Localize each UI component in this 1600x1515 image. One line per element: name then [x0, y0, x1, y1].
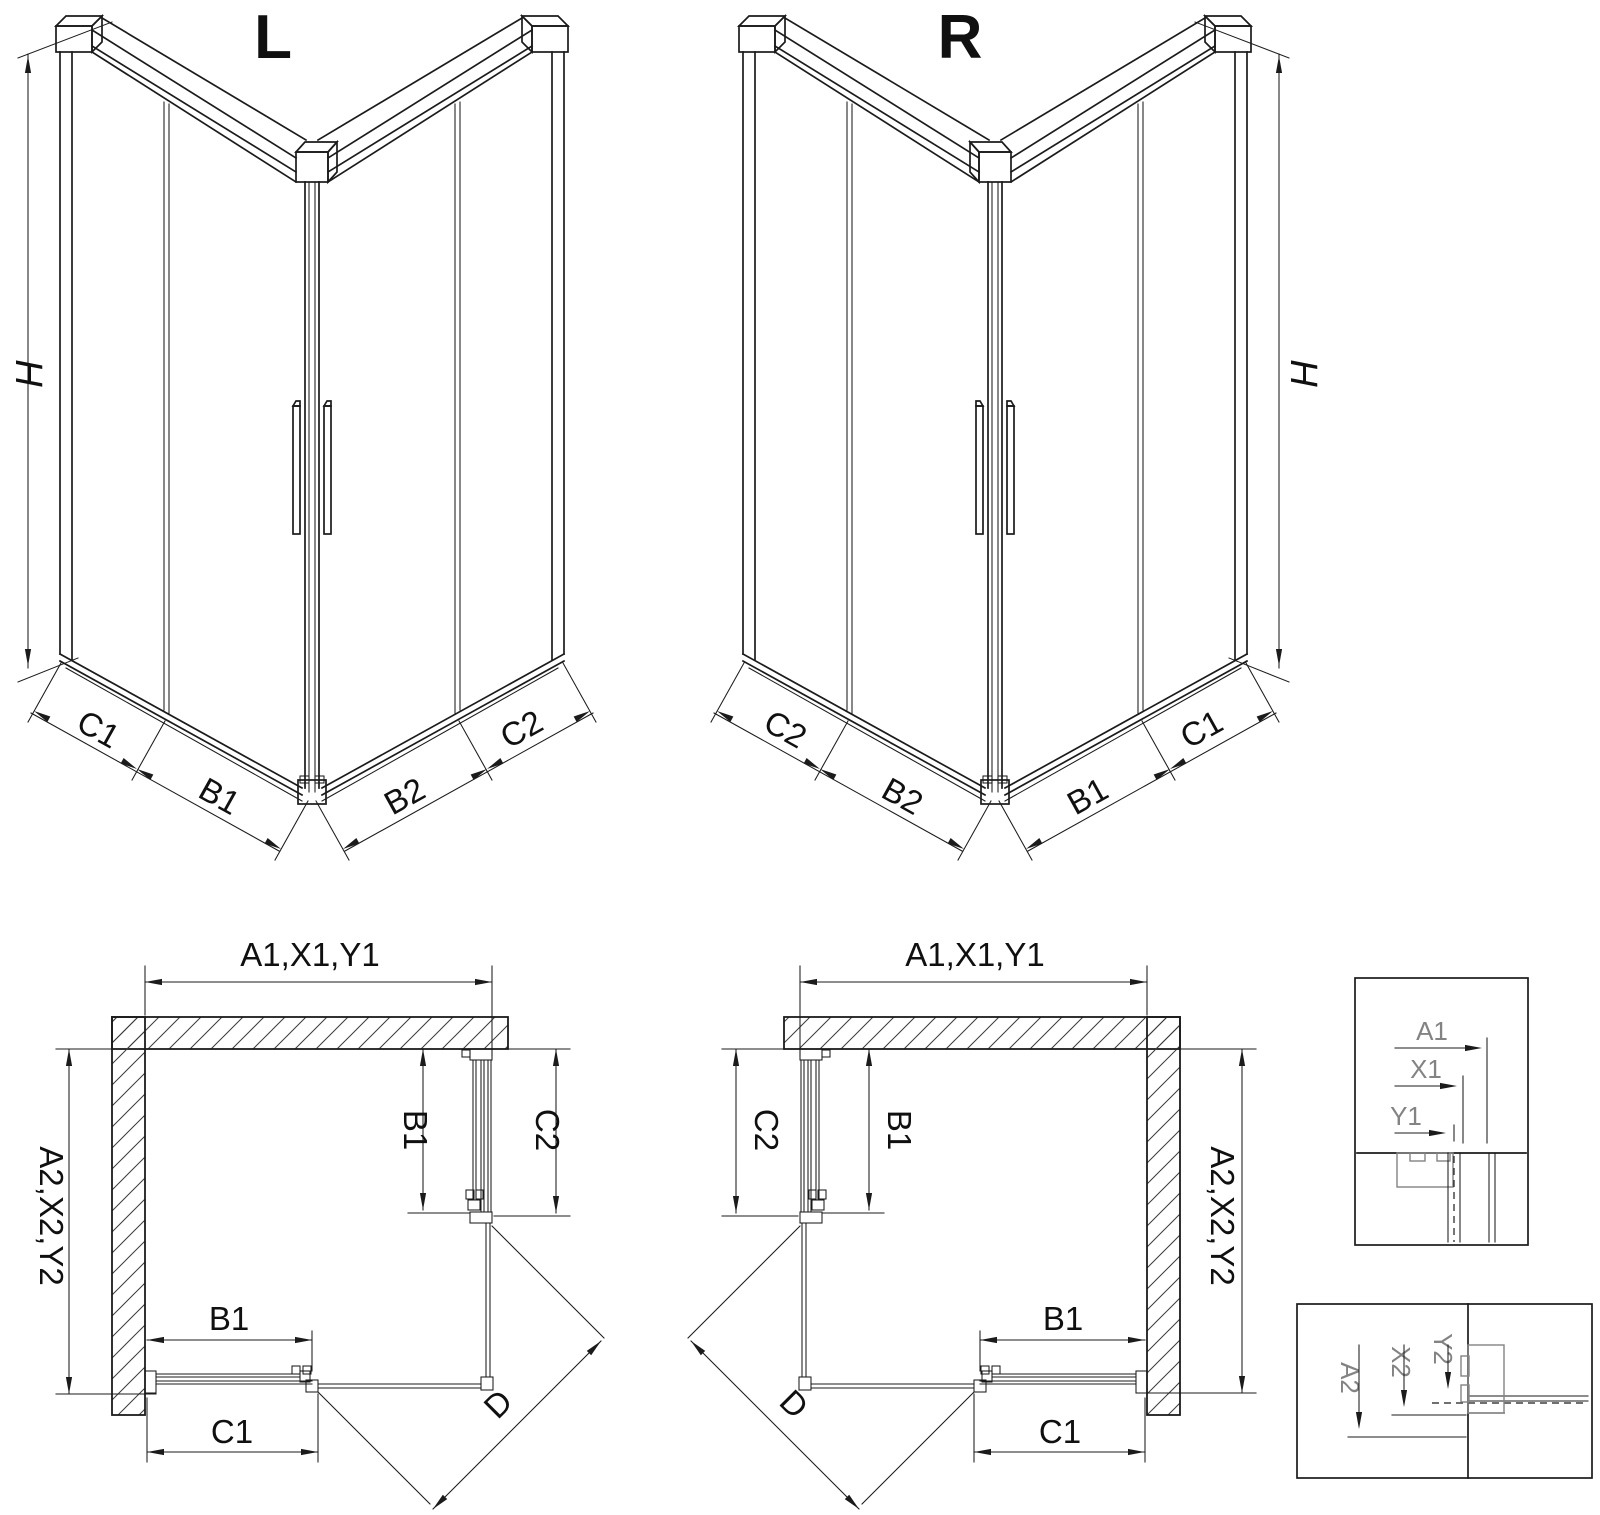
dim-label-c2-left: C2 [494, 703, 549, 756]
plan-front-panel-label-right: C1 [1039, 1413, 1081, 1450]
dim-label-c1-right: C1 [1174, 703, 1229, 756]
height-label-left: H [7, 359, 49, 387]
view-label-left: L [254, 3, 292, 72]
detail-a2-label: A2 [1335, 1362, 1365, 1394]
plan-width-label-left: A1,X1,Y1 [240, 936, 379, 973]
detail-y2-label: Y2 [1428, 1333, 1458, 1365]
dim-label-b1-right: B1 [1061, 770, 1114, 822]
plan-front-panel-label-left: C1 [211, 1413, 253, 1450]
wall-side [1147, 1017, 1180, 1415]
dim-label-b1-left: B1 [193, 770, 246, 822]
dim-label-c2-right: C2 [758, 703, 813, 756]
dim-label-c1-left: C1 [71, 703, 126, 756]
wall-top [784, 1017, 1180, 1049]
height-label-right: H [1282, 359, 1324, 387]
plan-front-door-label-right: B1 [1043, 1300, 1083, 1337]
view-label-right: R [938, 3, 983, 72]
plan-entry-label-left: D [476, 1382, 519, 1425]
iso-view-left: L H C1 B1 B2 C2 [7, 3, 596, 860]
detail-width-reference: A1 X1 Y1 [1355, 978, 1528, 1245]
iso-view-right: R H C2 B2 B1 C1 [711, 3, 1324, 860]
plan-side-panel-label-left: C2 [529, 1109, 566, 1151]
detail-y1-label: Y1 [1390, 1101, 1422, 1131]
plan-width-label-right: A1,X1,Y1 [905, 936, 1044, 973]
plan-depth-label-right: A2,X2,Y2 [1204, 1146, 1241, 1285]
shower-enclosure-dimension-diagram: L H C1 B1 B2 C2 R H C2 B2 B1 C1 A1,X1,Y1… [0, 0, 1600, 1515]
wall-top [112, 1017, 508, 1049]
plan-entry-label-right: D [773, 1382, 816, 1425]
detail-x1-label: X1 [1410, 1054, 1442, 1084]
dim-label-b2-right: B2 [876, 770, 929, 822]
detail-x2-label: X2 [1386, 1346, 1416, 1378]
plan-depth-label-left: A2,X2,Y2 [33, 1146, 70, 1285]
detail-depth-reference: A2 X2 Y2 [1297, 1304, 1592, 1478]
wall-side [112, 1017, 145, 1415]
drawing-page: L H C1 B1 B2 C2 R H C2 B2 B1 C1 A1,X1,Y1… [0, 0, 1600, 1515]
plan-side-door-label-left: B1 [397, 1110, 434, 1150]
plan-side-door-label-right: B1 [881, 1110, 918, 1150]
plan-view-left: A1,X1,Y1 A2,X2,Y2 B1 C2 B1 C1 D [33, 936, 604, 1511]
plan-front-door-label-left: B1 [209, 1300, 249, 1337]
plan-side-panel-label-right: C2 [748, 1109, 785, 1151]
plan-view-right: A1,X1,Y1 A2,X2,Y2 C2 B1 B1 C1 D [688, 936, 1256, 1511]
detail-a1-label: A1 [1416, 1016, 1448, 1046]
dim-label-b2-left: B2 [378, 770, 431, 822]
